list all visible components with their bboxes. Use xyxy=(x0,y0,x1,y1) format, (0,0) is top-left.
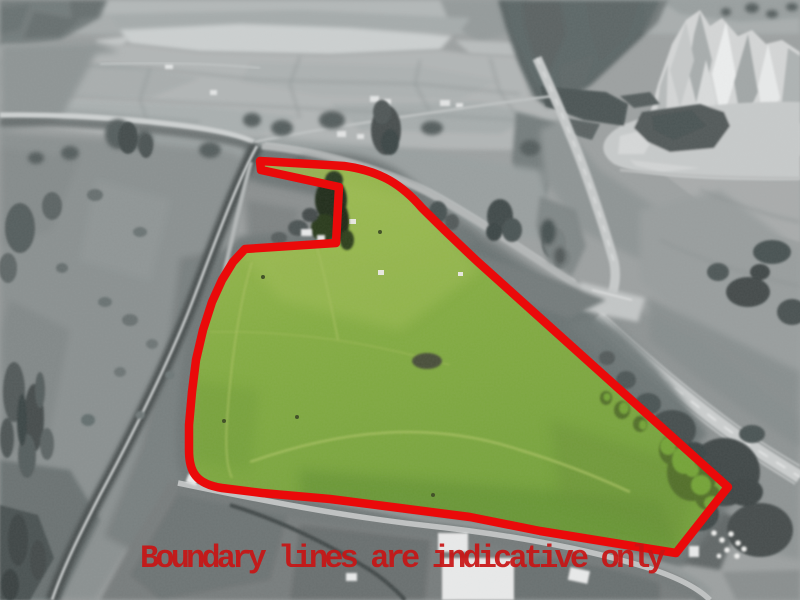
svg-text:Boundary lines are indicative: Boundary lines are indicative only xyxy=(140,540,666,577)
